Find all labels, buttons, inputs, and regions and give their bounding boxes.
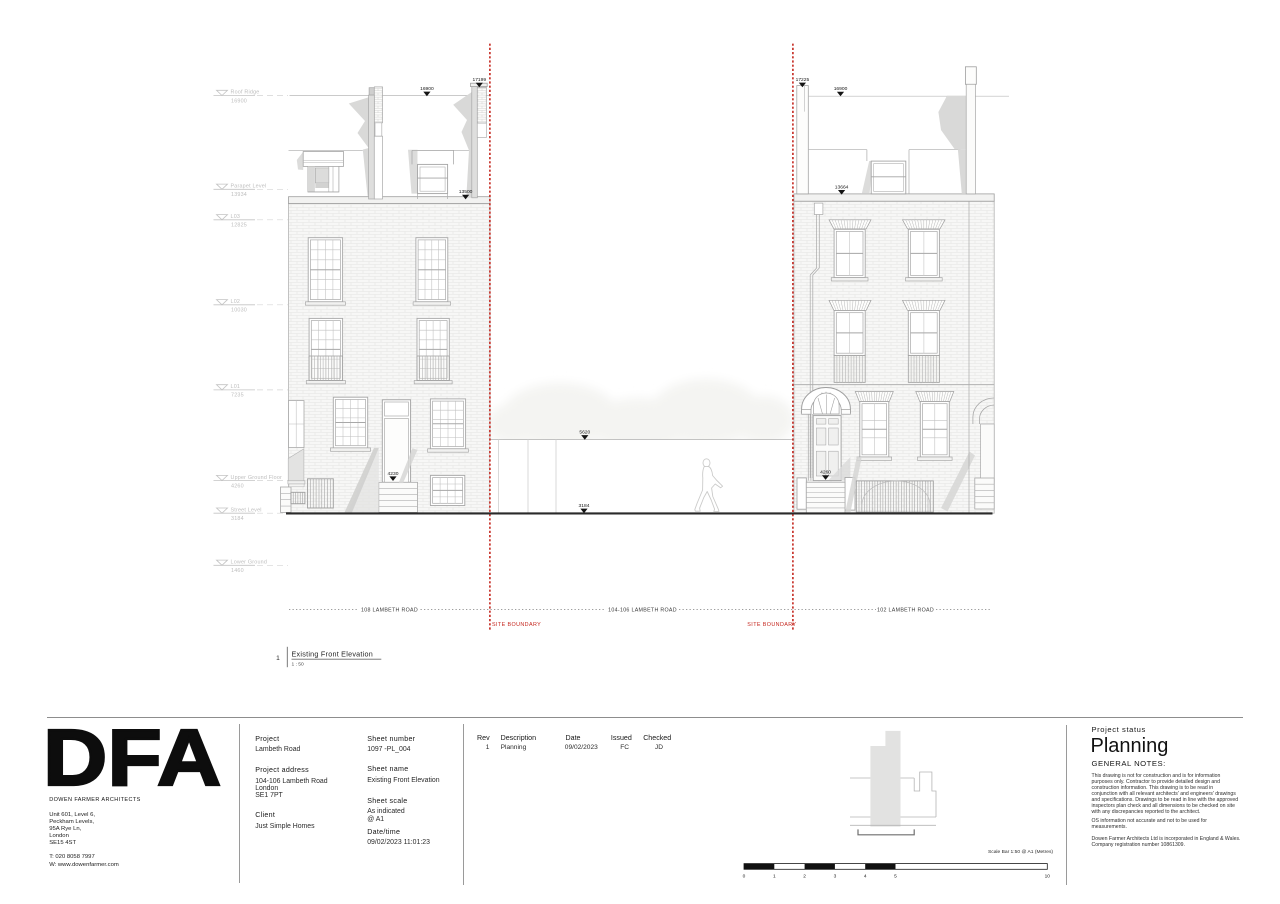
svg-text:16900: 16900 <box>834 86 848 92</box>
svg-text:13934: 13934 <box>231 192 247 198</box>
svg-text:102 LAMBETH ROAD: 102 LAMBETH ROAD <box>877 607 934 613</box>
svg-text:L03: L03 <box>231 214 241 220</box>
svg-text:3184: 3184 <box>231 516 244 522</box>
svg-text:16900: 16900 <box>231 98 247 104</box>
svg-text:4260: 4260 <box>231 483 244 489</box>
svg-text:4: 4 <box>864 873 867 879</box>
svg-text:17225: 17225 <box>796 77 810 83</box>
svg-text:4230: 4230 <box>388 471 399 477</box>
svg-text:10: 10 <box>1045 873 1051 879</box>
svg-text:Parapet Level: Parapet Level <box>231 184 267 190</box>
svg-text:5620: 5620 <box>579 430 590 436</box>
svg-text:104-106 LAMBETH ROAD: 104-106 LAMBETH ROAD <box>608 607 677 613</box>
svg-text:13664: 13664 <box>835 184 849 190</box>
svg-text:2: 2 <box>803 873 806 879</box>
svg-text:Street Level: Street Level <box>231 507 262 513</box>
svg-text:1460: 1460 <box>231 568 244 574</box>
svg-text:5: 5 <box>894 873 897 879</box>
svg-text:17199: 17199 <box>472 77 486 83</box>
svg-text:16900: 16900 <box>420 86 434 92</box>
svg-text:SITE BOUNDARY: SITE BOUNDARY <box>492 622 541 628</box>
svg-text:L02: L02 <box>231 299 241 305</box>
svg-text:SITE BOUNDARY: SITE BOUNDARY <box>747 622 796 628</box>
svg-text:3: 3 <box>834 873 837 879</box>
svg-text:12825: 12825 <box>231 223 247 229</box>
svg-text:L01: L01 <box>231 384 241 390</box>
svg-text:1: 1 <box>276 655 280 662</box>
svg-text:Lower Ground: Lower Ground <box>231 560 268 566</box>
svg-text:10030: 10030 <box>231 308 247 314</box>
svg-text:7235: 7235 <box>231 393 244 399</box>
svg-text:13500: 13500 <box>459 189 473 195</box>
svg-text:Roof Ridge: Roof Ridge <box>231 90 260 96</box>
svg-text:Upper Ground Floor: Upper Ground Floor <box>231 475 283 481</box>
svg-text:3184: 3184 <box>579 503 590 509</box>
svg-text:1 : 50: 1 : 50 <box>292 661 305 667</box>
svg-text:0: 0 <box>743 873 746 879</box>
svg-text:1: 1 <box>773 873 776 879</box>
svg-text:Existing Front Elevation: Existing Front Elevation <box>292 650 374 659</box>
svg-text:4260: 4260 <box>820 470 831 476</box>
svg-text:108 LAMBETH ROAD: 108 LAMBETH ROAD <box>361 607 418 613</box>
